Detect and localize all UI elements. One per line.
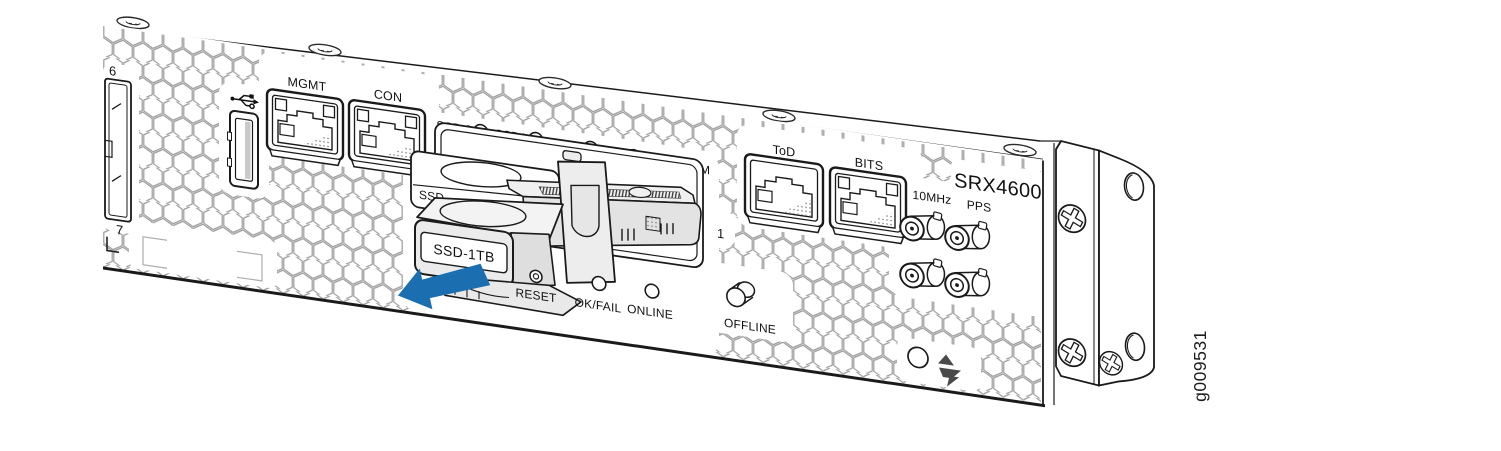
srx4600-chassis-drawing: 6 7 MGMT CON SSD 0 SSD1 MST HA ALM [103, 0, 1183, 448]
tod-rj45-port [745, 154, 823, 234]
usb-port [230, 110, 258, 189]
ssd-slot-number: 1 [717, 226, 724, 242]
port-number-7: 7 [116, 222, 123, 238]
mgmt-rj45-port [267, 89, 343, 166]
illustration-canvas: 6 7 MGMT CON SSD 0 SSD1 MST HA ALM [0, 0, 1501, 451]
figure-id-label: g009531 [1190, 311, 1212, 421]
right-end-cap [1040, 138, 1154, 420]
port-number-6: 6 [109, 63, 116, 79]
bits-rj45-port [830, 167, 906, 244]
